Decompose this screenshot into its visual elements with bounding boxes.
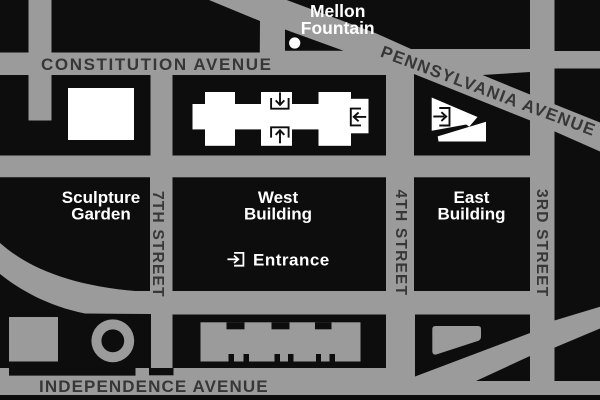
- svg-text:CONSTITUTION AVENUE: CONSTITUTION AVENUE: [41, 55, 273, 74]
- svg-text:Entrance: Entrance: [253, 251, 330, 270]
- svg-text:INDEPENDENCE AVENUE: INDEPENDENCE AVENUE: [39, 377, 269, 396]
- svg-text:Garden: Garden: [71, 204, 131, 223]
- svg-text:7TH STREET: 7TH STREET: [149, 191, 166, 298]
- svg-text:Building: Building: [244, 204, 312, 223]
- svg-text:4TH STREET: 4TH STREET: [392, 190, 409, 297]
- svg-text:3RD STREET: 3RD STREET: [533, 189, 550, 297]
- svg-text:Building: Building: [438, 204, 506, 223]
- svg-text:Fountain: Fountain: [301, 18, 375, 38]
